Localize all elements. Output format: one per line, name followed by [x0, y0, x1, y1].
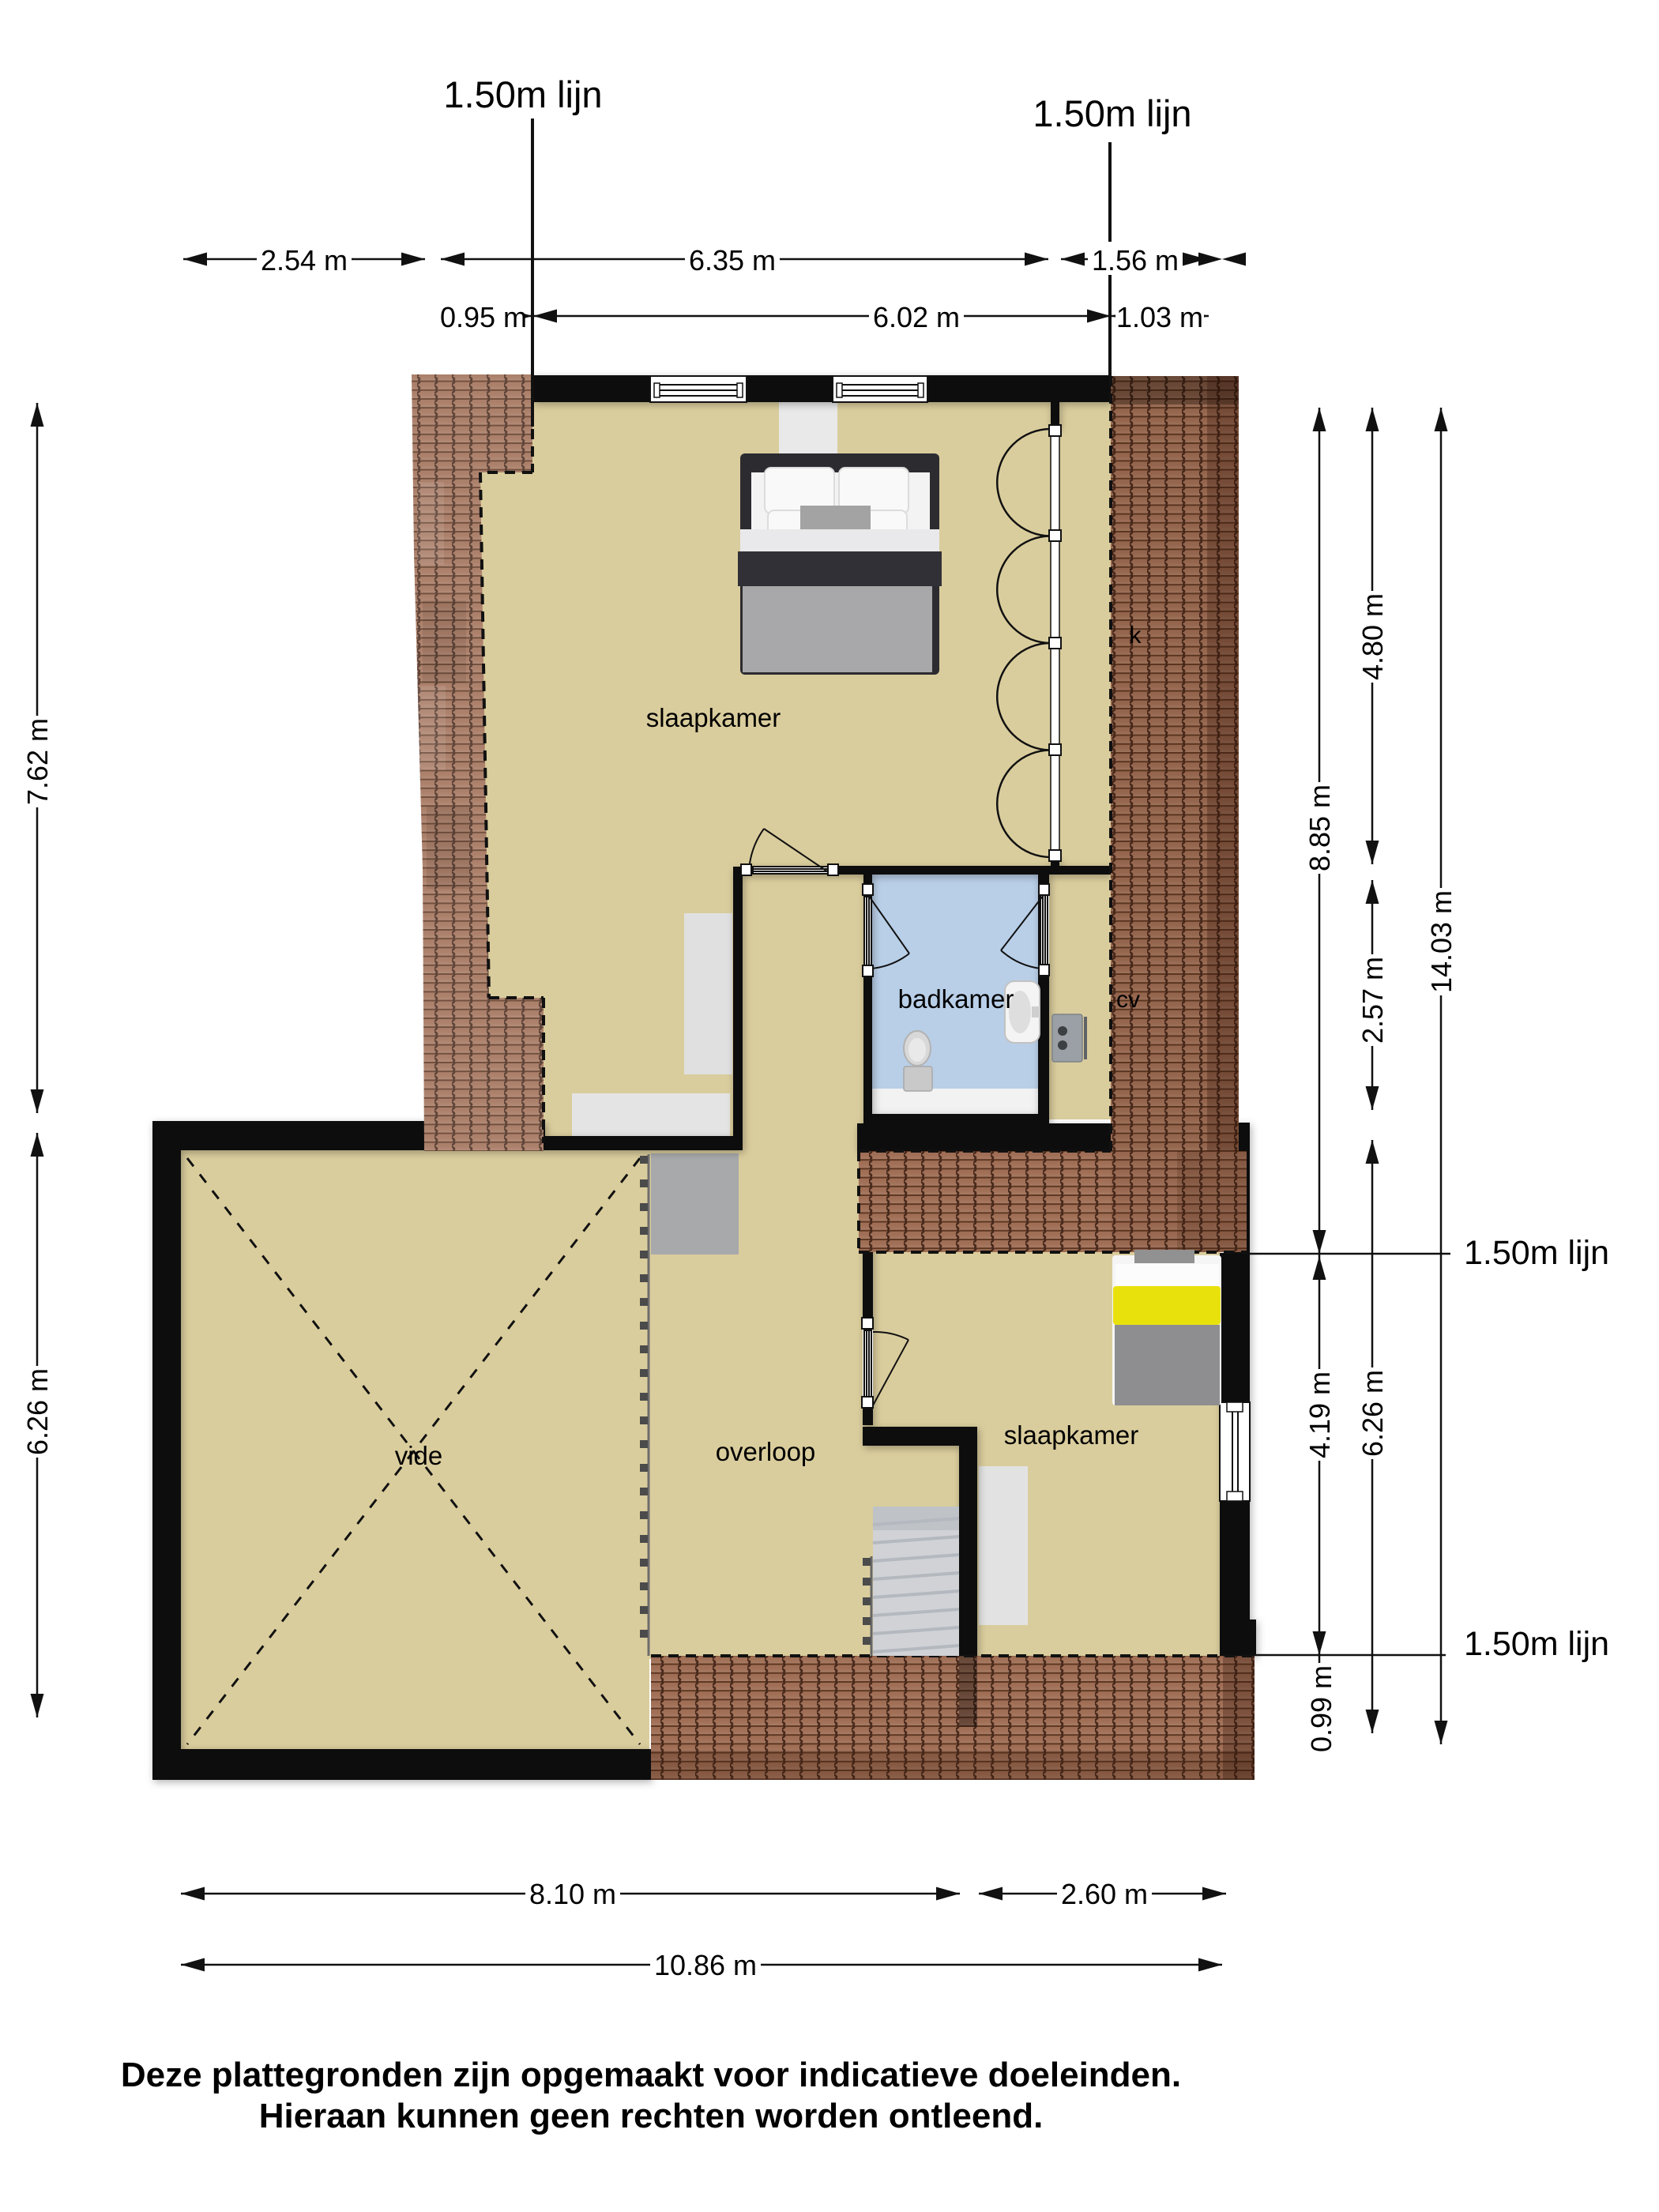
svg-text:2.60 m: 2.60 m [1061, 1878, 1148, 1910]
svg-text:7.62 m: 7.62 m [21, 718, 54, 805]
svg-text:1.50m lijn: 1.50m lijn [1033, 92, 1191, 134]
svg-text:k: k [1130, 623, 1142, 649]
svg-text:6.02 m: 6.02 m [873, 301, 960, 333]
svg-text:2.54 m: 2.54 m [261, 244, 348, 276]
svg-text:1.50m lijn: 1.50m lijn [1464, 1234, 1609, 1272]
svg-text:vide: vide [395, 1441, 443, 1470]
svg-text:6.26 m: 6.26 m [21, 1368, 54, 1455]
svg-text:1.50m lijn: 1.50m lijn [1464, 1625, 1609, 1663]
svg-text:0.95 m: 0.95 m [440, 301, 527, 333]
svg-text:badkamer: badkamer [898, 984, 1014, 1014]
svg-text:Hieraan kunnen geen rechten wo: Hieraan kunnen geen rechten worden ontle… [259, 2097, 1044, 2135]
svg-text:8.85 m: 8.85 m [1303, 784, 1336, 871]
svg-text:6.26 m: 6.26 m [1356, 1370, 1389, 1457]
svg-text:overloop: overloop [716, 1437, 816, 1466]
svg-text:0.99 m: 0.99 m [1305, 1665, 1337, 1752]
svg-text:Deze plattegronden zijn opgema: Deze plattegronden zijn opgemaakt voor i… [121, 2056, 1181, 2094]
svg-text:4.80 m: 4.80 m [1356, 593, 1389, 680]
svg-text:slaapkamer: slaapkamer [1004, 1420, 1139, 1450]
svg-text:1.50m lijn: 1.50m lijn [443, 73, 602, 115]
svg-text:14.03 m: 14.03 m [1425, 890, 1458, 993]
svg-text:slaapkamer: slaapkamer [646, 703, 781, 732]
svg-text:4.19 m: 4.19 m [1303, 1371, 1336, 1458]
svg-text:1.03 m: 1.03 m [1116, 301, 1203, 333]
svg-text:cv: cv [1116, 987, 1140, 1013]
svg-text:6.35 m: 6.35 m [689, 244, 776, 276]
svg-text:10.86 m: 10.86 m [654, 1949, 757, 1981]
svg-text:8.10 m: 8.10 m [529, 1878, 616, 1910]
svg-text:1.56 m: 1.56 m [1092, 244, 1179, 276]
svg-text:2.57 m: 2.57 m [1356, 957, 1389, 1044]
